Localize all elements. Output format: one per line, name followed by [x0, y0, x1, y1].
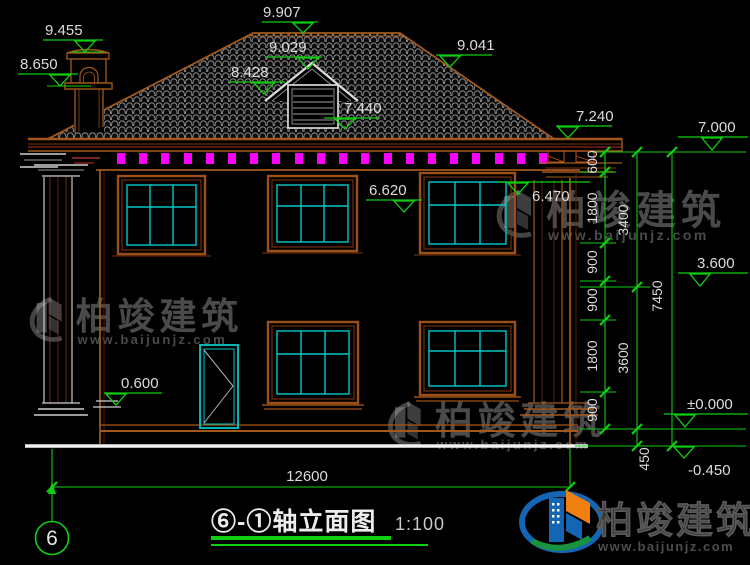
mark-porch: 0.600 [104, 375, 162, 405]
window-1f-right [414, 322, 521, 401]
window-1f-middle [262, 322, 364, 409]
logo-website: www.baijunjz.com [597, 539, 734, 554]
svg-text:9.041: 9.041 [457, 37, 495, 54]
svg-text:9.455: 9.455 [45, 22, 83, 39]
dim-7450: 7450 [649, 280, 665, 311]
dim-450: 450 [636, 447, 652, 471]
title-underline-thin [211, 544, 428, 546]
mark-level-3600: 3.600 [678, 255, 748, 286]
mark-eave-top: 7.240 [556, 108, 614, 138]
svg-text:7.240: 7.240 [576, 108, 614, 125]
svg-text:7.440: 7.440 [344, 100, 382, 117]
svg-text:0.600: 0.600 [121, 375, 159, 392]
drawing-title: ⑥-①轴立面图 [211, 507, 376, 536]
dim-900-b: 900 [584, 288, 600, 312]
svg-text:8.650: 8.650 [20, 56, 58, 73]
dim-3600: 3600 [615, 342, 631, 373]
mark-outdoor-ground: -0.450 [674, 447, 731, 479]
svg-text:9.029: 9.029 [269, 39, 307, 56]
mark-chimney-top: 9.455 [43, 22, 104, 52]
dentil-band [117, 153, 547, 164]
mark-level-zero: ±0.000 [664, 396, 748, 427]
title-block: ⑥-①轴立面图 1:100 [211, 507, 445, 546]
dim-12600: 12600 [286, 468, 328, 485]
entry-door [200, 345, 238, 428]
title-underline-thick [211, 536, 391, 540]
window-2f-middle [262, 176, 363, 253]
svg-text:3.600: 3.600 [697, 255, 735, 272]
mark-right-roof: 9.041 [436, 37, 495, 67]
dim-900-a: 900 [584, 250, 600, 274]
mark-ridge: 9.907 [262, 4, 318, 33]
dim-900-c: 900 [584, 398, 600, 422]
svg-text:6.620: 6.620 [369, 182, 407, 199]
company-logo: 柏竣建筑 www.baijunjz.com [522, 490, 750, 554]
dim-3400: 3400 [615, 204, 631, 235]
logo-company-name: 柏竣建筑 [596, 499, 750, 541]
dim-1800-lower: 1800 [584, 340, 600, 371]
svg-text:6.470: 6.470 [532, 188, 570, 205]
svg-text:±0.000: ±0.000 [687, 396, 733, 413]
cad-elevation-drawing: 柏竣建筑 www.baijunjz.com [0, 0, 750, 565]
dim-1800-upper: 1800 [584, 192, 600, 223]
dim-600: 600 [584, 150, 600, 174]
axis-bubble: 6 [36, 522, 69, 555]
mark-frieze: 6.620 [366, 182, 422, 212]
svg-text:9.907: 9.907 [263, 4, 301, 21]
svg-text:7.000: 7.000 [698, 119, 736, 136]
axis-number: 6 [46, 527, 58, 550]
window-2f-left [112, 176, 211, 256]
svg-text:-0.450: -0.450 [688, 462, 731, 479]
svg-text:8.428: 8.428 [231, 64, 269, 81]
mark-level-7000: 7.000 [678, 119, 748, 150]
drawing-canvas: 柏竣建筑 www.baijunjz.com [0, 0, 750, 565]
left-column [34, 165, 88, 415]
right-cornice [540, 151, 622, 177]
drawing-scale: 1:100 [395, 514, 445, 534]
